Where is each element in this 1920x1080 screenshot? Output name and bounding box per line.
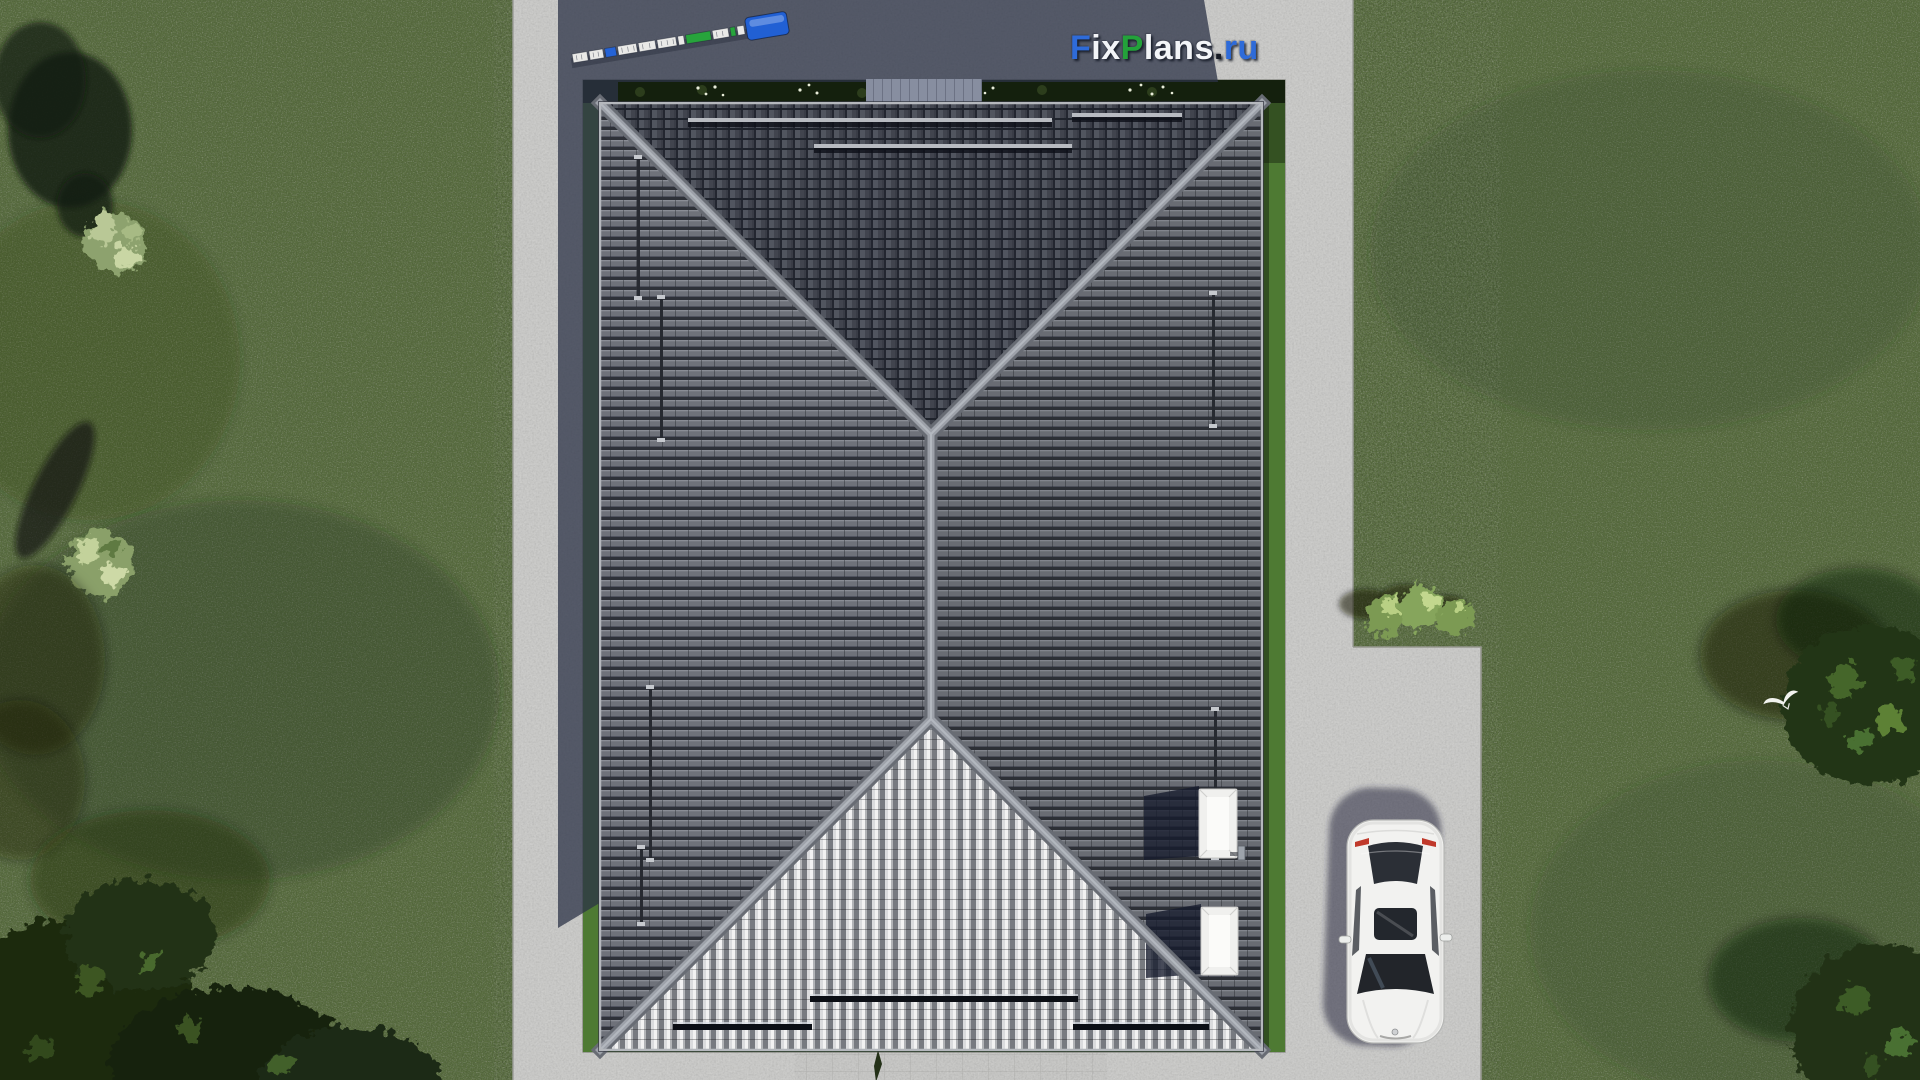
car-mirror-right — [1440, 934, 1452, 941]
watermark-part: . — [1214, 29, 1224, 67]
entry-mat — [866, 79, 982, 102]
bush-top-left — [84, 212, 146, 274]
patio-paver-lines — [795, 1048, 1107, 1080]
aerial-render-scene: FixPlans.ru — [0, 0, 1920, 1080]
watermark-part: P — [1121, 29, 1144, 67]
car-rear-window — [1368, 842, 1423, 884]
watermark-part: F — [1070, 29, 1091, 67]
skylight-2 — [1201, 907, 1238, 975]
watermark-part: ru — [1224, 29, 1259, 67]
skylight-1 — [1199, 789, 1237, 858]
car-mirror-left — [1339, 936, 1351, 943]
car-emblem — [1392, 1029, 1398, 1035]
watermark-part: ix — [1091, 29, 1120, 67]
roof — [599, 102, 1264, 1052]
watermark-logo: FixPlans.ru — [1070, 31, 1259, 65]
skylight-shadow-1 — [1144, 786, 1199, 860]
render-canvas — [0, 0, 1920, 1080]
watermark-part: lans — [1144, 29, 1214, 67]
car — [1339, 820, 1452, 1043]
